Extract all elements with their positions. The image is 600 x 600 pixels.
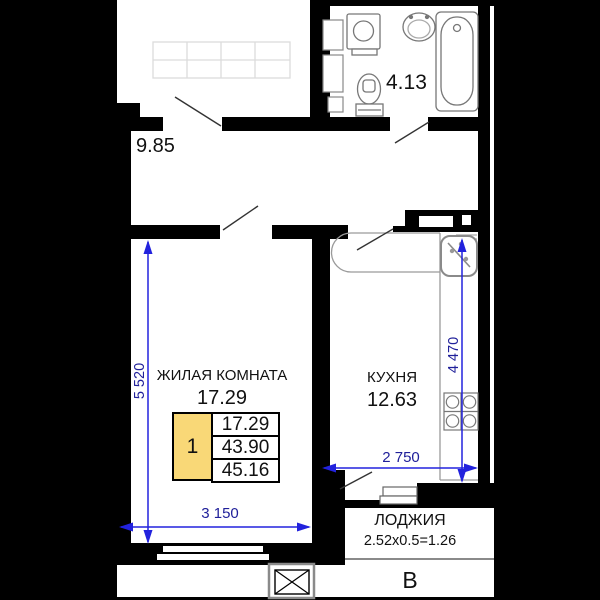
wall-segment [417,483,494,500]
loggia-glazing-line [345,558,494,560]
kitchen-sink-icon [441,236,477,276]
wall-segment [131,225,220,239]
bathroom-door [395,122,429,143]
living-room-window [157,554,269,560]
wall-segment [312,470,345,565]
dimension-kitchen-width: 2 750 [361,449,441,466]
kitchen-door [357,229,393,250]
loggia-label: ЛОДЖИЯ [345,512,475,530]
living-room-area-label: 17.29 [132,387,312,410]
wall-left-margin [0,0,117,600]
wall-segment [428,117,478,131]
wall-segment [117,103,140,117]
kitchen-window-opening [462,215,471,225]
table-row: 43.90 [211,435,280,460]
wall-segment [478,0,490,483]
wardrobe-icon [153,42,290,78]
section-label: В [380,567,440,594]
living-room-door [223,206,258,230]
table-row: 45.16 [211,458,280,483]
dimension-kitchen-depth: 4 470 [446,315,462,395]
ventilation-shaft-icon [269,564,314,598]
living-room-label: ЖИЛАЯ КОМНАТА [132,367,312,384]
bathroom-area-label: 4.13 [386,71,427,95]
wall-right-margin [494,0,600,600]
bathtub-icon [436,12,478,111]
wall-segment [310,0,330,131]
washbasin-icon [403,13,435,41]
hallway-area-label: 9.85 [136,135,175,158]
table-row: 17.29 [211,412,280,437]
kitchen-label: КУХНЯ [332,369,452,386]
loggia-wall [345,500,494,508]
wall-segment [222,117,390,131]
washing-machine-icon [347,14,380,55]
kitchen-window-opening [419,216,453,227]
toilet-icon [356,74,383,116]
wall-segment [117,103,131,565]
apartment-number-cell: 1 [172,412,213,481]
wall-segment [272,225,348,239]
floor-plan: 9.85 4.13 ЖИЛАЯ КОМНАТА 17.29 КУХНЯ 12.6… [0,0,600,600]
wall-segment [330,0,494,6]
dimension-living-width: 3 150 [180,505,260,522]
entrance-door [175,97,221,126]
wall-segment [312,239,330,470]
dimension-living-depth: 5 520 [132,341,148,421]
kitchen-area-label: 12.63 [332,389,452,412]
living-room-window [163,546,263,552]
wall-segment [117,117,163,131]
loggia-calc-label: 2.52x0.5=1.26 [345,533,475,549]
